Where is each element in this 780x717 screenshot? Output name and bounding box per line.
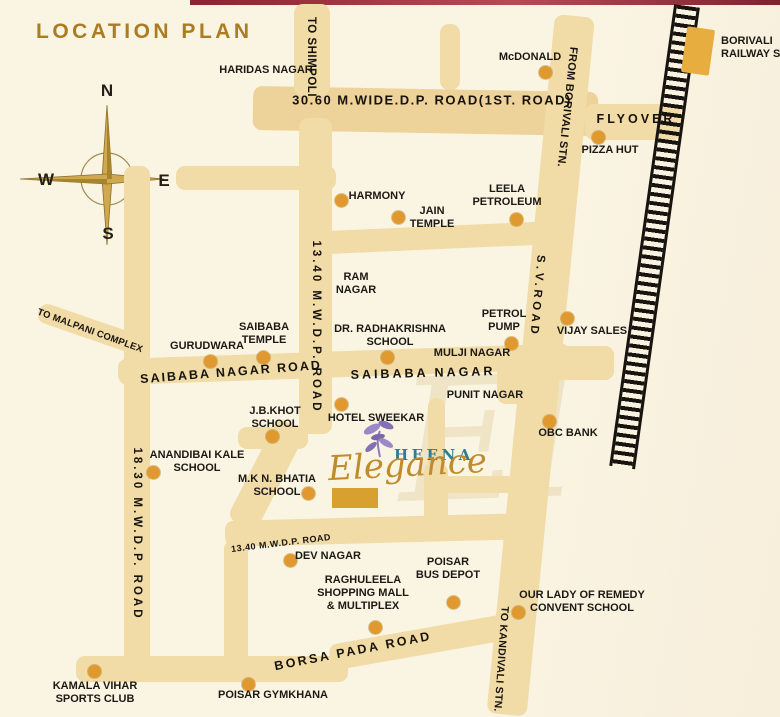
place-label-leela-petroleum: LEELAPETROLEUM <box>472 183 541 209</box>
place-label-dr-radhakrishna-school: DR. RADHAKRISHNASCHOOL <box>334 323 446 349</box>
place-label-saibaba-temple: SAIBABATEMPLE <box>239 321 289 347</box>
place-label-anandibai-kale-school: ANANDIBAI KALESCHOOL <box>150 449 245 475</box>
place-label-mcdonald: McDONALD <box>499 51 561 64</box>
place-label-mulji-nagar: MULJI NAGAR <box>434 347 510 360</box>
compass-south-label: S <box>102 224 113 244</box>
place-label-vijay-sales: VIJAY SALES <box>557 325 627 338</box>
road-label-saibaba-nagar: SAIBABA NAGAR <box>350 364 495 382</box>
railway-station-marker <box>681 26 715 75</box>
road-west-stub <box>176 166 336 190</box>
place-label-mkn-bhatia-school: M.K N. BHATIASCHOOL <box>238 473 316 499</box>
poisar-bus-depot-dot <box>447 596 460 609</box>
leela-petroleum-dot <box>510 213 523 226</box>
place-label-pizza-hut: PIZZA HUT <box>581 144 638 157</box>
compass-west-label: W <box>38 170 54 190</box>
logo-script-name: Elegance <box>327 441 488 489</box>
dr-radhakrishna-school-dot <box>381 351 394 364</box>
hotel-sweekar-dot <box>335 398 348 411</box>
heena-elegance-logo: HEENA Elegance <box>328 415 478 515</box>
harmony-dot <box>335 194 348 207</box>
railway-station-label-line1: BORIVALI <box>721 35 780 48</box>
road-label-mwdp-1830-road: 18.30 M.W.D.P. ROAD <box>131 447 143 620</box>
place-label-our-lady-convent-school: OUR LADY OF REMEDYCONVENT SCHOOL <box>519 589 645 615</box>
place-label-jb-khot-school: J.B.KHOTSCHOOL <box>249 405 300 431</box>
location-plan-map: LOCATION PLAN El N S E W BORIVALI R <box>0 0 780 717</box>
compass-north-label: N <box>101 81 113 101</box>
pizza-hut-dot <box>592 131 605 144</box>
kamala-vihar-sports-club-dot <box>88 665 101 678</box>
road-label-dp-road-1st: 30.60 M.WIDE.D.P. ROAD(1ST. ROAD) <box>292 93 572 108</box>
road-label-dp-1340-road: 13.40 M.W.D.P. ROAD <box>310 240 322 413</box>
scan-edge-strip <box>190 0 780 5</box>
mcdonald-dot <box>539 66 552 79</box>
place-label-raghuleela-mall: RAGHULEELASHOPPING MALL& MULTIPLEX <box>317 574 409 613</box>
place-label-kamala-vihar-sports-club: KAMALA VIHARSPORTS CLUB <box>53 680 138 706</box>
place-label-ram-nagar: RAMNAGAR <box>336 271 376 297</box>
place-label-gurudwara: GURUDWARA <box>170 340 244 353</box>
place-label-haridas-nagar: HARIDAS NAGAR <box>219 64 313 77</box>
compass-east-label: E <box>158 171 169 191</box>
jb-khot-school-dot <box>266 430 279 443</box>
place-label-harmony: HARMONY <box>349 190 406 203</box>
railway-station-label: BORIVALI RAILWAY STATION <box>721 35 780 61</box>
place-label-obc-bank: OBC BANK <box>538 427 597 440</box>
place-label-punit-nagar: PUNIT NAGAR <box>447 389 523 402</box>
place-label-petrol-pump: PETROLPUMP <box>482 308 527 334</box>
railway-station-label-line2: RAILWAY STATION <box>721 48 780 61</box>
place-label-jain-temple: JAINTEMPLE <box>410 205 455 231</box>
place-label-dev-nagar: DEV NAGAR <box>295 550 361 563</box>
page-title: LOCATION PLAN <box>36 20 253 44</box>
road-north-stub <box>440 24 460 90</box>
road-1340-south-connector <box>224 540 248 664</box>
road-label-to-shimpoli: TO SHIMPOLI <box>305 17 317 97</box>
raghuleela-mall-dot <box>369 621 382 634</box>
place-label-poisar-bus-depot: POISARBUS DEPOT <box>416 556 480 582</box>
compass-rose: N S E W <box>18 80 196 255</box>
road-label-flyover: FLYOVER <box>597 112 676 126</box>
vijay-sales-dot <box>561 312 574 325</box>
place-label-hotel-sweekar: HOTEL SWEEKAR <box>328 412 424 425</box>
jain-temple-dot <box>392 211 405 224</box>
railway-track <box>609 4 700 469</box>
place-label-poisar-gymkhana: POISAR GYMKHANA <box>218 689 328 702</box>
